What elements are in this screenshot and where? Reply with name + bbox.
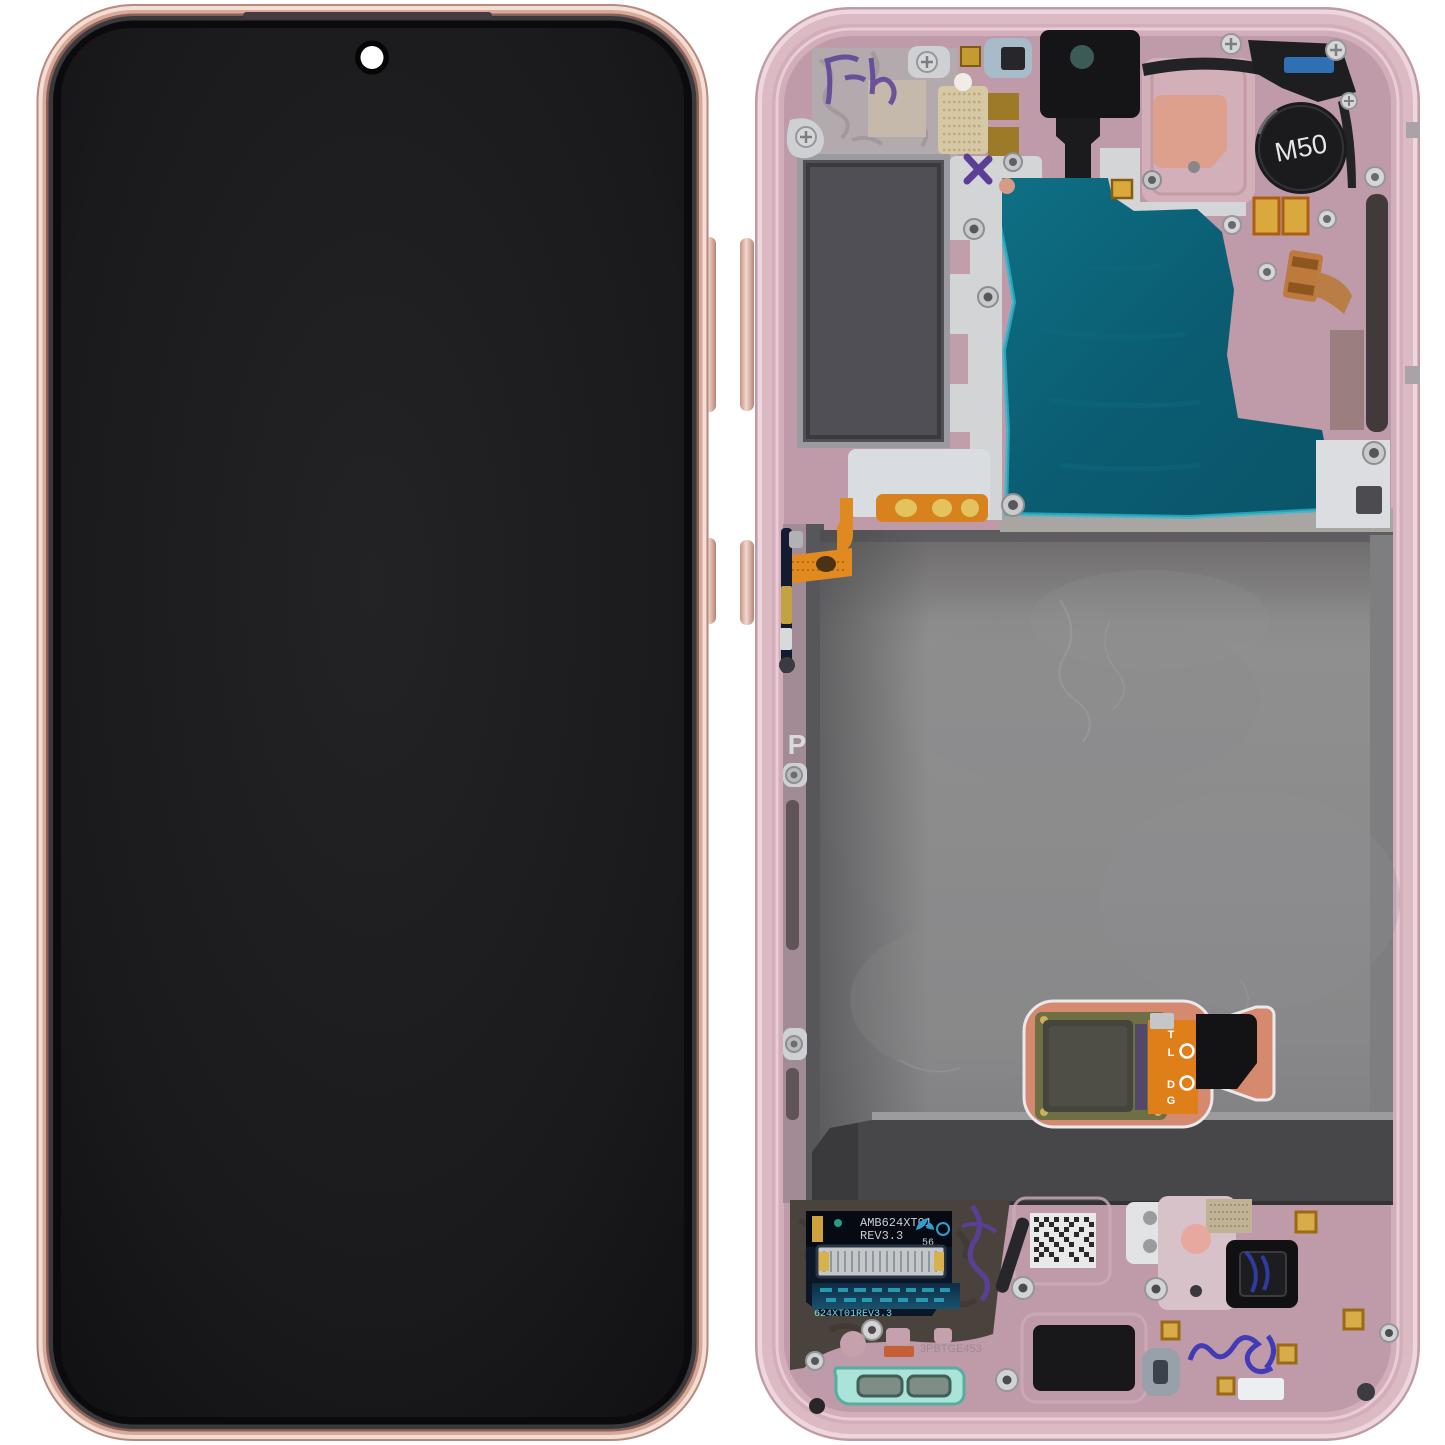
svg-text:D: D — [1167, 1079, 1175, 1091]
svg-text:P: P — [788, 729, 807, 760]
svg-text:REV3.3: REV3.3 — [860, 1229, 903, 1243]
svg-text:624XT01REV3.3: 624XT01REV3.3 — [814, 1309, 892, 1320]
svg-text:G: G — [1167, 1095, 1176, 1107]
svg-text:L: L — [1168, 1047, 1175, 1059]
svg-text:3PBTGE453: 3PBTGE453 — [920, 1343, 982, 1355]
svg-text:T: T — [1168, 1029, 1175, 1041]
